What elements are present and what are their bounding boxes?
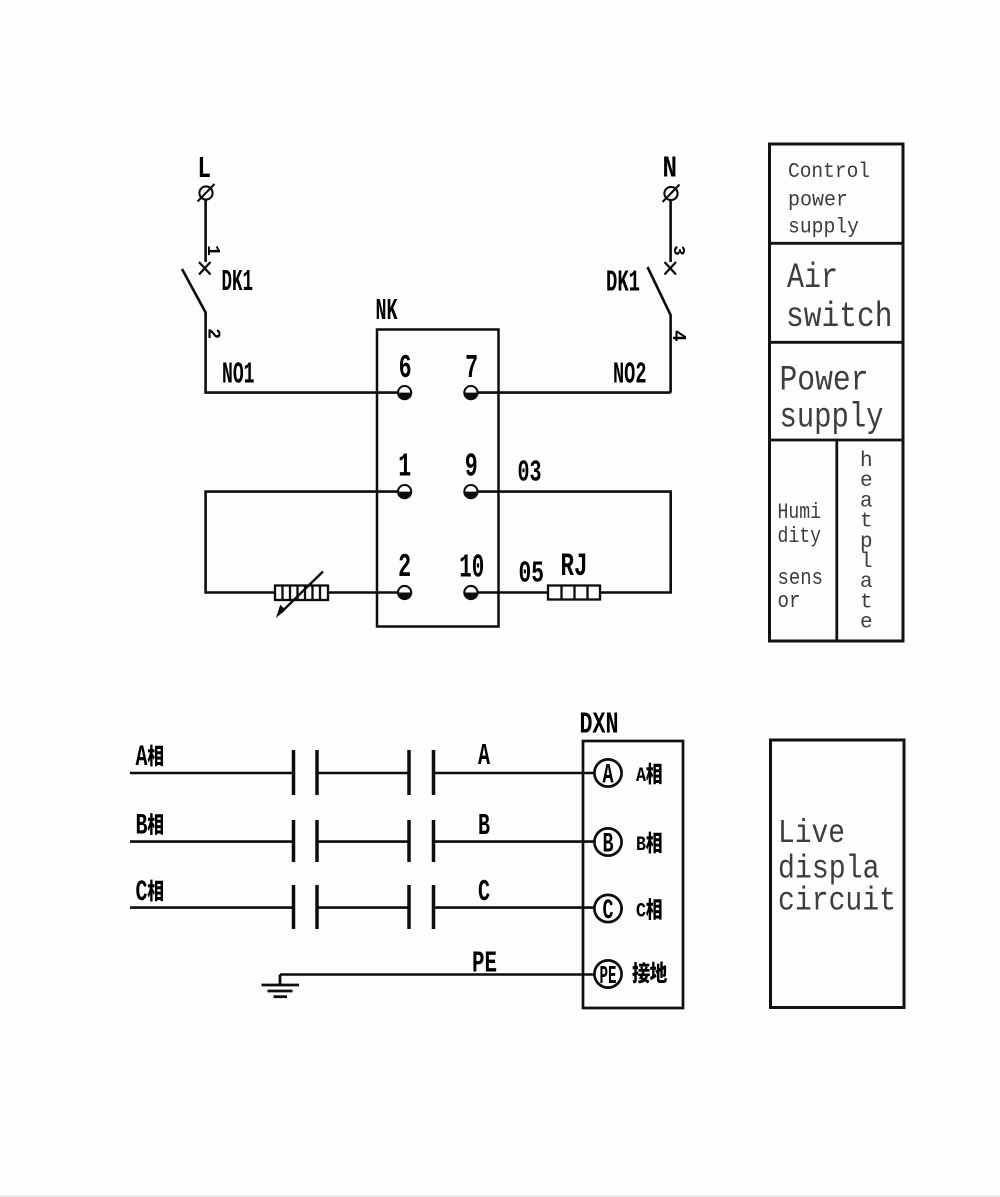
svg-text:Humi: Humi bbox=[778, 499, 822, 525]
svg-text:1: 1 bbox=[398, 449, 411, 486]
svg-text:03: 03 bbox=[518, 456, 542, 491]
svg-text:Air: Air bbox=[787, 257, 838, 298]
svg-text:DK1: DK1 bbox=[606, 266, 640, 301]
svg-text:2: 2 bbox=[398, 549, 411, 586]
svg-text:NK: NK bbox=[376, 294, 398, 329]
svg-text:9: 9 bbox=[465, 449, 478, 486]
svg-text:Power: Power bbox=[780, 360, 869, 401]
svg-text:or: or bbox=[778, 588, 801, 614]
svg-text:switch: switch bbox=[786, 296, 893, 337]
svg-text:DK1: DK1 bbox=[222, 265, 254, 300]
svg-text:B: B bbox=[478, 809, 490, 844]
svg-text:supply: supply bbox=[780, 397, 884, 438]
svg-text:C: C bbox=[478, 875, 490, 910]
svg-text:4: 4 bbox=[667, 330, 689, 341]
svg-text:Control: Control bbox=[788, 160, 870, 184]
svg-text:C: C bbox=[603, 896, 614, 927]
svg-text:power: power bbox=[788, 189, 848, 213]
svg-text:PE: PE bbox=[472, 947, 497, 982]
svg-text:B: B bbox=[603, 830, 614, 861]
svg-text:C: C bbox=[636, 901, 646, 924]
svg-text:C: C bbox=[136, 876, 148, 910]
svg-text:Live: Live bbox=[778, 815, 845, 852]
svg-text:dity: dity bbox=[778, 523, 822, 549]
svg-text:NO1: NO1 bbox=[222, 358, 255, 393]
svg-text:A: A bbox=[636, 765, 647, 788]
svg-text:supply: supply bbox=[788, 216, 859, 240]
svg-text:L: L bbox=[198, 152, 212, 187]
svg-text:NO2: NO2 bbox=[613, 358, 647, 393]
svg-text:RJ: RJ bbox=[561, 548, 588, 585]
svg-text:05: 05 bbox=[519, 557, 545, 592]
svg-text:e: e bbox=[860, 612, 873, 635]
svg-text:A: A bbox=[136, 741, 148, 775]
svg-text:A: A bbox=[603, 761, 614, 792]
svg-text:B: B bbox=[636, 834, 646, 857]
svg-text:N: N bbox=[663, 152, 678, 187]
svg-text:A: A bbox=[478, 739, 490, 774]
svg-text:B: B bbox=[136, 810, 148, 844]
svg-text:circuit: circuit bbox=[778, 883, 896, 920]
svg-text:10: 10 bbox=[459, 550, 484, 587]
svg-text:3: 3 bbox=[668, 245, 687, 255]
svg-text:6: 6 bbox=[399, 350, 412, 387]
svg-text:DXN: DXN bbox=[580, 708, 619, 743]
svg-text:1: 1 bbox=[202, 245, 222, 256]
svg-text:2: 2 bbox=[203, 328, 223, 339]
svg-text:7: 7 bbox=[465, 350, 478, 387]
svg-text:PE: PE bbox=[600, 961, 617, 991]
